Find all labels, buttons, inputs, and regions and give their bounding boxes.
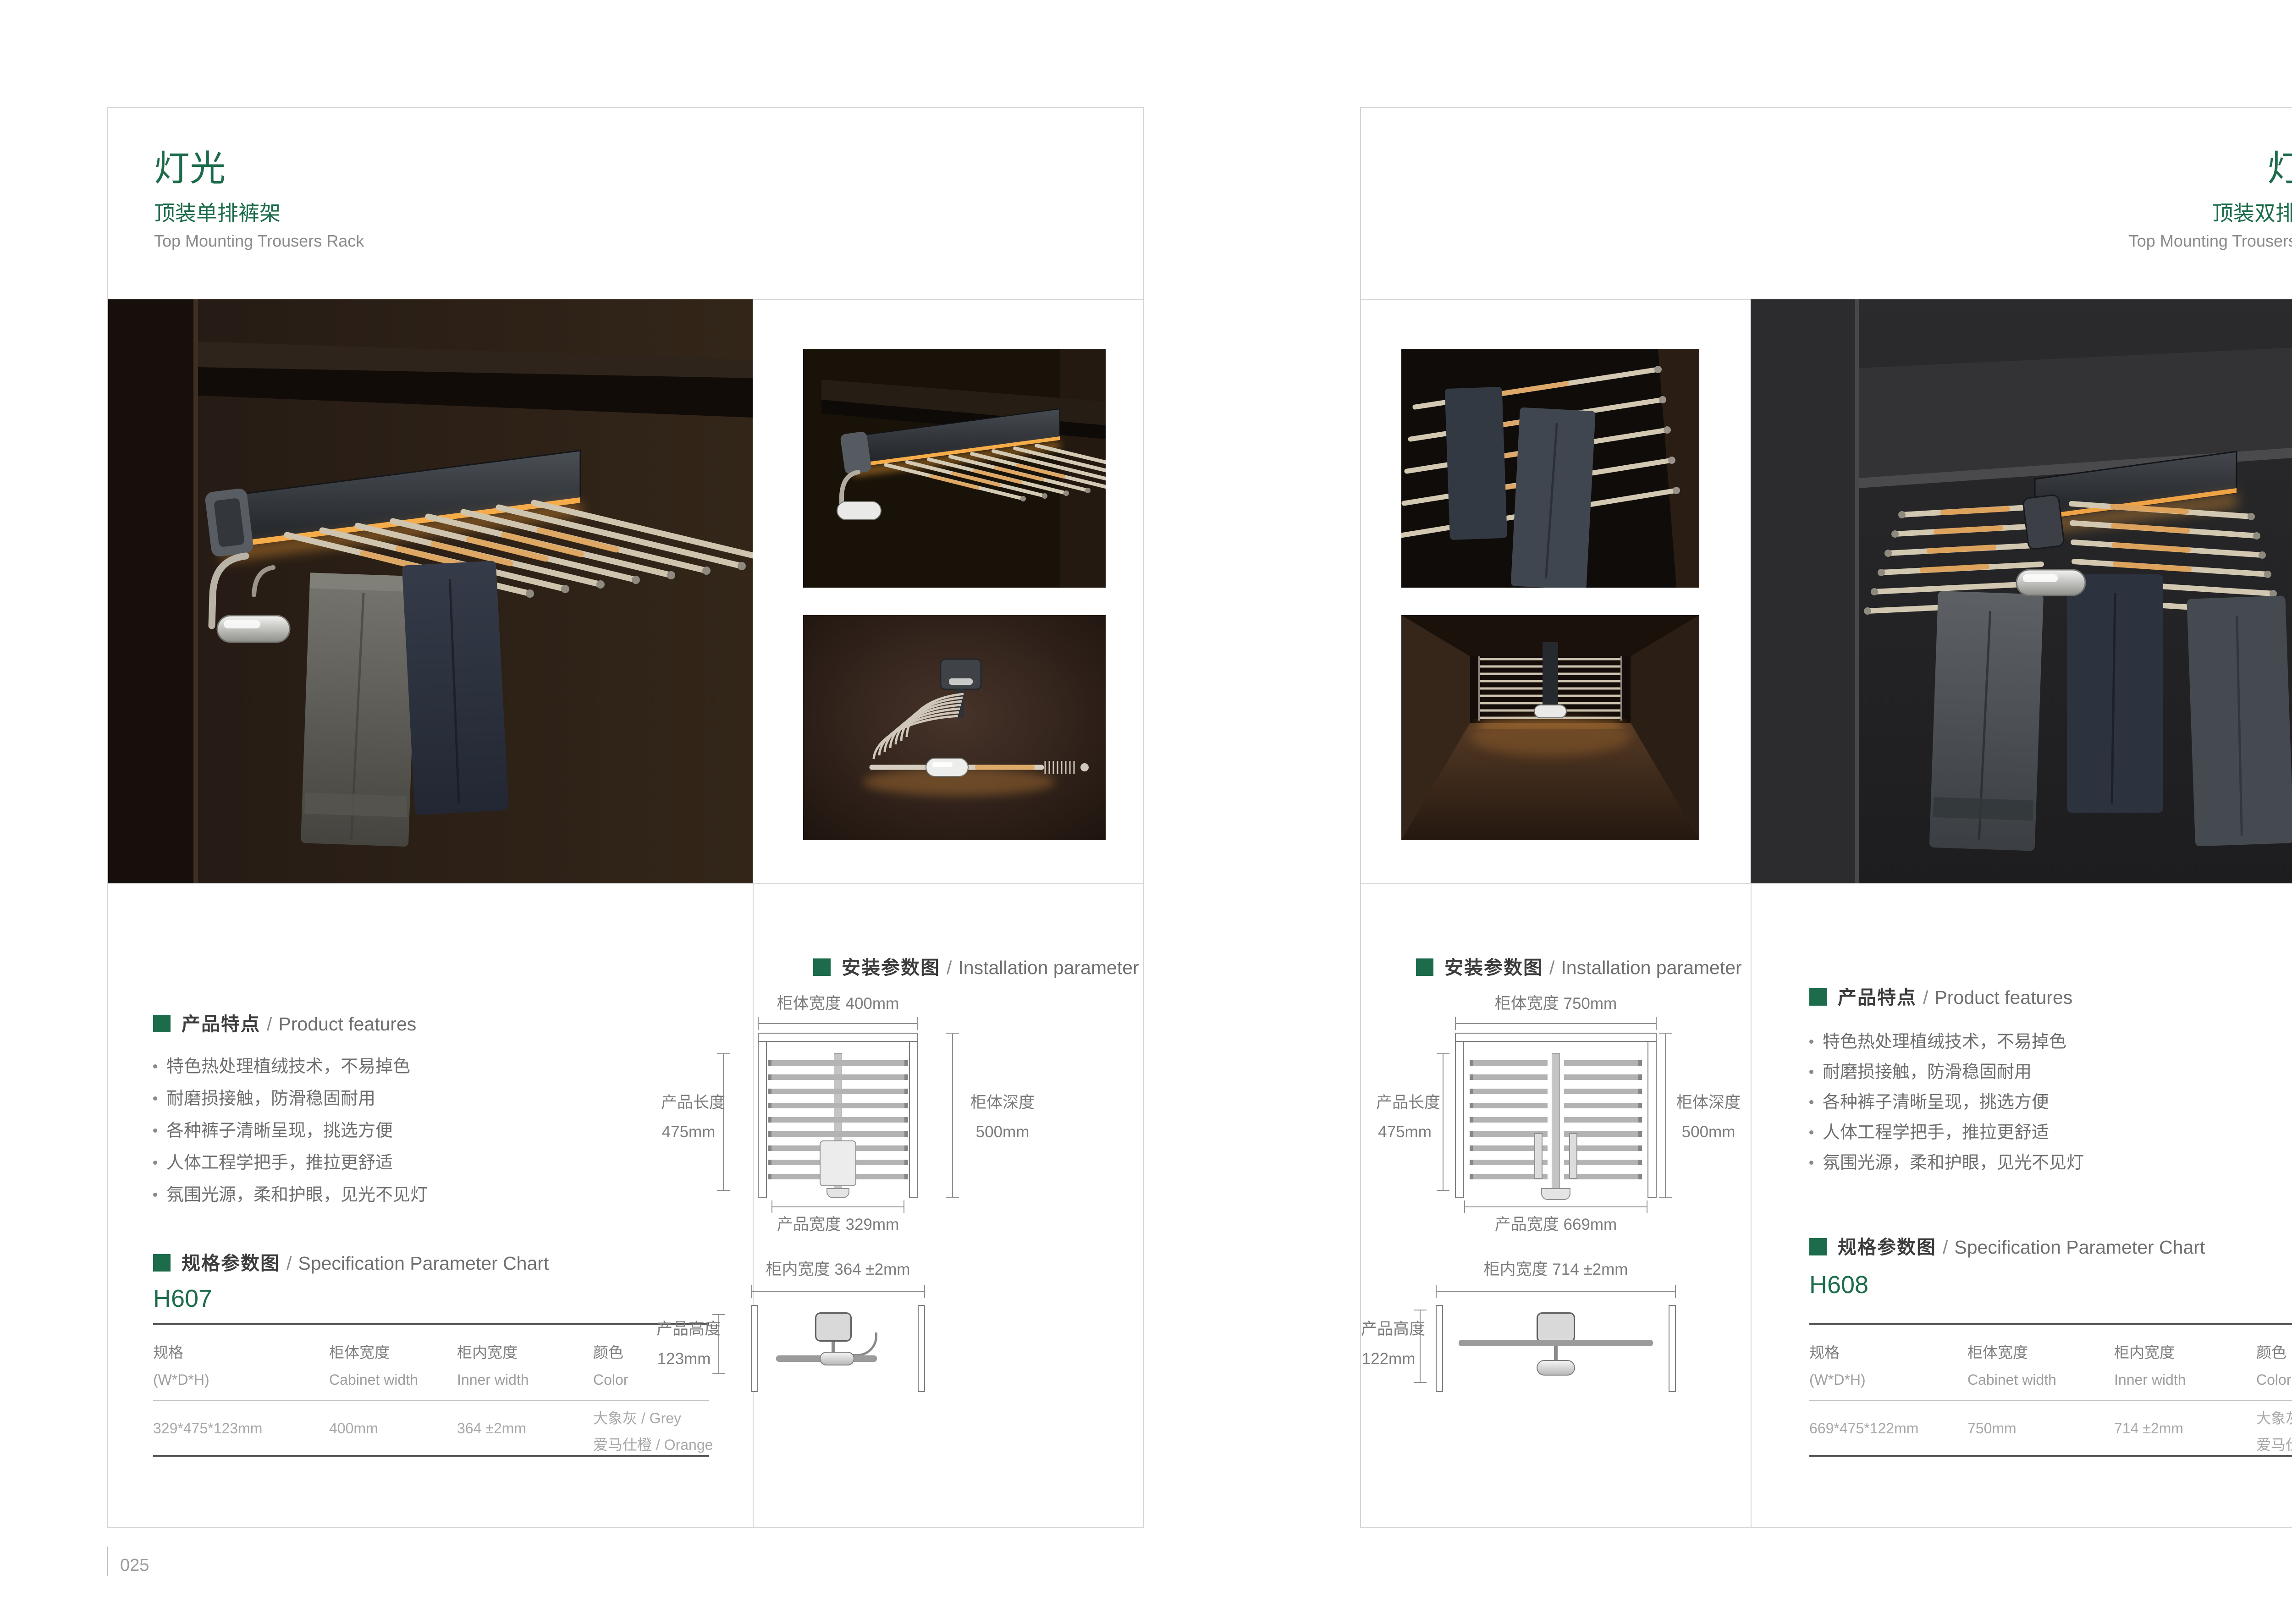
page-right-card: 灯光 顶装双排裤架 Top Mounting Trousers Rack (1360, 107, 2292, 1528)
features-title-sep: / (267, 1013, 272, 1035)
features-title-zh: 产品特点 (182, 1013, 260, 1035)
dimension-line-product-width (771, 1206, 904, 1207)
rack-bar-caps-left (768, 1060, 771, 1180)
photo-small-double-bars-svg (1401, 349, 1699, 588)
dimension-line-product-length (723, 1053, 724, 1191)
photo-small-double-bars (1401, 349, 1699, 588)
install-title-zh: 安装参数图 (1444, 957, 1543, 978)
feature-text: 特色热处理植绒技术，不易掉色 (166, 1057, 410, 1076)
label-cabinet-depth-val: 500mm (966, 1124, 1039, 1140)
feature-item: 特色热处理植绒技术，不易掉色 (1809, 1033, 2066, 1051)
label-product-height-zh: 产品高度 (1361, 1321, 1416, 1337)
rack-bar-caps-right (1638, 1060, 1642, 1180)
spec-table: 规格(W*D*H) 柜体宽度Cabinet width 柜内宽度Inner wi… (1809, 1323, 2292, 1457)
features-title-en: Product features (278, 1013, 416, 1035)
table-rule-mid (1809, 1400, 2292, 1401)
feature-text: 氛围光源，柔和护眼，见光不见灯 (1823, 1153, 2084, 1173)
feature-item: 特色热处理植绒技术，不易掉色 (153, 1058, 410, 1075)
rack-bracket-left (1534, 1133, 1543, 1179)
color-orange: 爱马仕橙 / Orange (593, 1432, 713, 1459)
section-divider (1751, 883, 1752, 1528)
features-title-zh: 产品特点 (1838, 987, 1917, 1008)
page-left-card: 灯光 顶装单排裤架 Top Mounting Trousers Rack (107, 107, 1144, 1528)
label-inner-width: 柜内宽度 364 ±2mm (758, 1261, 918, 1277)
features-title-sep: / (1923, 987, 1928, 1008)
feature-text: 各种裤子清晰呈现，挑选方便 (166, 1121, 393, 1140)
photo-main-double-rack-svg (1751, 299, 2292, 883)
model-number: H608 (1809, 1272, 1868, 1297)
feature-text: 氛围光源，柔和护眼，见光不见灯 (166, 1185, 428, 1205)
cell-size: 329*475*123mm (153, 1420, 262, 1437)
photo-small-topdown-view-svg (1401, 615, 1699, 840)
bullet-dot (153, 1129, 157, 1133)
features-section-header: 产品特点/Product features (1809, 988, 2072, 1007)
photo-small-rack-closeup-svg (803, 349, 1106, 588)
label-cabinet-depth-val: 500mm (1674, 1124, 1743, 1140)
feature-text: 人体工程学把手，推拉更舒适 (166, 1153, 393, 1173)
label-product-length-val: 475mm (1376, 1124, 1433, 1140)
product-stem-frontview (1554, 1346, 1558, 1360)
cell-cabinet-width: 400mm (329, 1420, 378, 1437)
spec-table: 规格(W*D*H) 柜体宽度Cabinet width 柜内宽度Inner wi… (153, 1323, 709, 1457)
bullet-dot (153, 1161, 157, 1165)
color-grey: 大象灰 / Grey (2256, 1405, 2292, 1432)
label-product-height-zh: 产品高度 (656, 1321, 711, 1337)
page-title: 灯光 (2267, 150, 2292, 186)
content-divider (1361, 883, 2292, 884)
col-header-size: 规格(W*D*H) (1809, 1340, 1866, 1388)
table-rule-bottom (153, 1455, 709, 1457)
cabinet-left-panel (1455, 1041, 1464, 1198)
col-header-cabinet-width: 柜体宽度Cabinet width (329, 1340, 418, 1388)
feature-item: 各种裤子清晰呈现，挑选方便 (153, 1122, 393, 1140)
cabinet-right-panel (1647, 1041, 1657, 1198)
cell-cabinet-width: 750mm (1967, 1420, 2017, 1437)
photo-main-single-rack (108, 299, 753, 883)
label-product-width: 产品宽度 669mm (1464, 1217, 1647, 1233)
feature-item: 耐磨损接触，防滑稳固耐用 (153, 1090, 375, 1107)
cabinet-side-left-frontview (751, 1305, 758, 1392)
photo-small-product-side-svg (803, 615, 1106, 840)
rack-bar-caps-left (1470, 1060, 1473, 1180)
section-marker-square (1809, 1238, 1827, 1255)
page-number-left: 025 (120, 1557, 149, 1574)
feature-item: 氛围光源，柔和护眼，见光不见灯 (153, 1186, 428, 1204)
color-grey: 大象灰 / Grey (593, 1405, 713, 1432)
cell-size: 669*475*122mm (1809, 1420, 1918, 1437)
spec-title-zh: 规格参数图 (1838, 1237, 1936, 1258)
photo-small-product-side (803, 615, 1106, 840)
rack-base-topview (1541, 1188, 1570, 1200)
bullet-dot (1809, 1130, 1813, 1134)
section-divider (753, 883, 754, 1528)
section-marker-square (153, 1015, 171, 1032)
product-hook-frontview (852, 1332, 877, 1356)
install-title-zh: 安装参数图 (842, 957, 940, 978)
content-divider (108, 883, 1143, 884)
feature-text: 人体工程学把手，推拉更舒适 (1823, 1123, 2049, 1142)
cabinet-top-panel (758, 1033, 918, 1042)
page-subtitle: 顶装单排裤架 (154, 203, 281, 224)
label-product-length-zh: 产品长度 (661, 1095, 716, 1111)
install-title-sep: / (947, 957, 952, 978)
feature-item: 人体工程学把手，推拉更舒适 (1809, 1124, 2049, 1141)
cell-color: 大象灰 / Grey 爱马仕橙 / Orange (593, 1405, 713, 1458)
dimension-line-cabinet-width (1455, 1023, 1657, 1024)
label-cabinet-width: 柜体宽度 750mm (1455, 996, 1657, 1012)
section-marker-square (153, 1254, 171, 1272)
spec-title-en: Specification Parameter Chart (298, 1253, 549, 1274)
cabinet-left-panel (758, 1041, 767, 1198)
feature-item: 耐磨损接触，防滑稳固耐用 (1809, 1063, 2032, 1081)
feature-item: 人体工程学把手，推拉更舒适 (153, 1154, 393, 1172)
table-rule-top (153, 1323, 709, 1325)
spec-title-sep: / (286, 1253, 292, 1274)
cabinet-right-panel (909, 1041, 918, 1198)
features-title-en: Product features (1934, 987, 2072, 1008)
page-subtitle: 顶装双排裤架 (2212, 203, 2292, 224)
photo-main-double-rack (1751, 299, 2292, 883)
table-rule-top (1809, 1323, 2292, 1325)
product-handle-frontview (820, 1352, 854, 1365)
photo-main-single-rack-svg (108, 299, 753, 883)
label-product-width: 产品宽度 329mm (758, 1217, 918, 1233)
table-rule-mid (153, 1400, 709, 1401)
feature-text: 耐磨损接触，防滑稳固耐用 (1823, 1062, 2032, 1082)
table-rule-bottom (1809, 1455, 2292, 1457)
features-section-header: 产品特点/Product features (153, 1015, 416, 1034)
section-marker-square (1809, 988, 1827, 1006)
dimension-line-inner-width (751, 1291, 925, 1292)
bullet-dot (1809, 1040, 1813, 1044)
product-bar-frontview (1459, 1340, 1653, 1346)
feature-item: 各种裤子清晰呈现，挑选方便 (1809, 1094, 2049, 1111)
col-header-inner-width: 柜内宽度Inner width (457, 1340, 529, 1388)
product-housing-frontview (815, 1312, 852, 1342)
label-product-length-val: 475mm (661, 1124, 716, 1140)
label-inner-width: 柜内宽度 714 ±2mm (1441, 1261, 1670, 1277)
dimension-line-cabinet-depth (952, 1033, 953, 1198)
spec-section-header: 规格参数图/Specification Parameter Chart (1809, 1238, 2205, 1257)
dimension-line-cabinet-depth (1665, 1033, 1666, 1198)
bullet-dot (1809, 1070, 1813, 1074)
cabinet-side-right-frontview (1669, 1305, 1676, 1392)
bullet-dot (1809, 1100, 1813, 1104)
col-header-cabinet-width: 柜体宽度Cabinet width (1967, 1340, 2056, 1388)
dimension-line-inner-width (1436, 1291, 1676, 1292)
spec-title-sep: / (1943, 1237, 1948, 1258)
spec-section-header: 规格参数图/Specification Parameter Chart (153, 1254, 549, 1273)
col-header-color: 颜色Color (2256, 1340, 2291, 1388)
color-orange: 爱马仕橙 / Orange (2256, 1432, 2292, 1459)
col-header-size: 规格(W*D*H) (153, 1340, 209, 1388)
label-product-length-zh: 产品长度 (1376, 1095, 1433, 1111)
page-subtitle-en: Top Mounting Trousers Rack (2129, 233, 2292, 249)
spec-title-en: Specification Parameter Chart (1954, 1237, 2205, 1258)
product-handle-frontview (1537, 1360, 1575, 1376)
cell-inner-width: 714 ±2mm (2114, 1420, 2183, 1437)
feature-text: 各种裤子清晰呈现，挑选方便 (1823, 1093, 2049, 1112)
rack-rail-topview (1552, 1053, 1560, 1191)
feature-item: 氛围光源，柔和护眼，见光不见灯 (1809, 1154, 2084, 1172)
product-housing-frontview (1537, 1312, 1575, 1343)
section-marker-square (813, 958, 831, 976)
dimension-line-cabinet-width (758, 1023, 918, 1024)
footer-divider-left (107, 1547, 108, 1576)
install-section-header: 安装参数图/Installation parameter (813, 958, 1139, 977)
cabinet-side-right-frontview (918, 1305, 925, 1392)
col-header-color: 颜色Color (593, 1340, 628, 1388)
label-cabinet-depth-zh: 柜体深度 (966, 1095, 1039, 1111)
label-cabinet-width: 柜体宽度 400mm (758, 996, 918, 1012)
rack-bar-caps-right (904, 1060, 908, 1180)
bullet-dot (1809, 1161, 1813, 1165)
bullet-dot (153, 1096, 157, 1101)
cabinet-top-panel (1455, 1033, 1657, 1042)
install-title-en: Installation parameter (958, 957, 1139, 978)
feature-text: 耐磨损接触，防滑稳固耐用 (166, 1089, 375, 1108)
section-marker-square (1416, 958, 1433, 976)
photo-small-rack-closeup (803, 349, 1106, 588)
catalog-spread: 灯光 顶装单排裤架 Top Mounting Trousers Rack (0, 0, 2292, 1624)
install-title-sep: / (1549, 957, 1554, 978)
photo-small-topdown-view (1401, 615, 1699, 840)
rack-bracket-right (1569, 1133, 1577, 1179)
rack-motor-topview (820, 1140, 856, 1186)
dimension-line-product-length (1443, 1053, 1444, 1191)
spec-title-zh: 规格参数图 (182, 1253, 280, 1274)
label-product-height-val: 122mm (1361, 1351, 1416, 1367)
rack-base-topview (826, 1188, 849, 1198)
cell-color: 大象灰 / Grey 爱马仕橙 / Orange (2256, 1405, 2292, 1458)
cell-inner-width: 364 ±2mm (457, 1420, 526, 1437)
page-subtitle-en: Top Mounting Trousers Rack (154, 233, 364, 249)
dimension-line-product-width (1464, 1206, 1647, 1207)
install-title-en: Installation parameter (1561, 957, 1741, 978)
cabinet-side-left-frontview (1436, 1305, 1443, 1392)
install-section-header: 安装参数图/Installation parameter (1416, 958, 1742, 977)
label-product-height-val: 123mm (656, 1351, 711, 1367)
bullet-dot (153, 1064, 157, 1068)
bullet-dot (153, 1193, 157, 1197)
page-title: 灯光 (154, 150, 226, 186)
model-number: H607 (153, 1286, 212, 1311)
feature-text: 特色热处理植绒技术，不易掉色 (1823, 1032, 2066, 1051)
col-header-inner-width: 柜内宽度Inner width (2114, 1340, 2186, 1388)
label-cabinet-depth-zh: 柜体深度 (1674, 1095, 1743, 1111)
